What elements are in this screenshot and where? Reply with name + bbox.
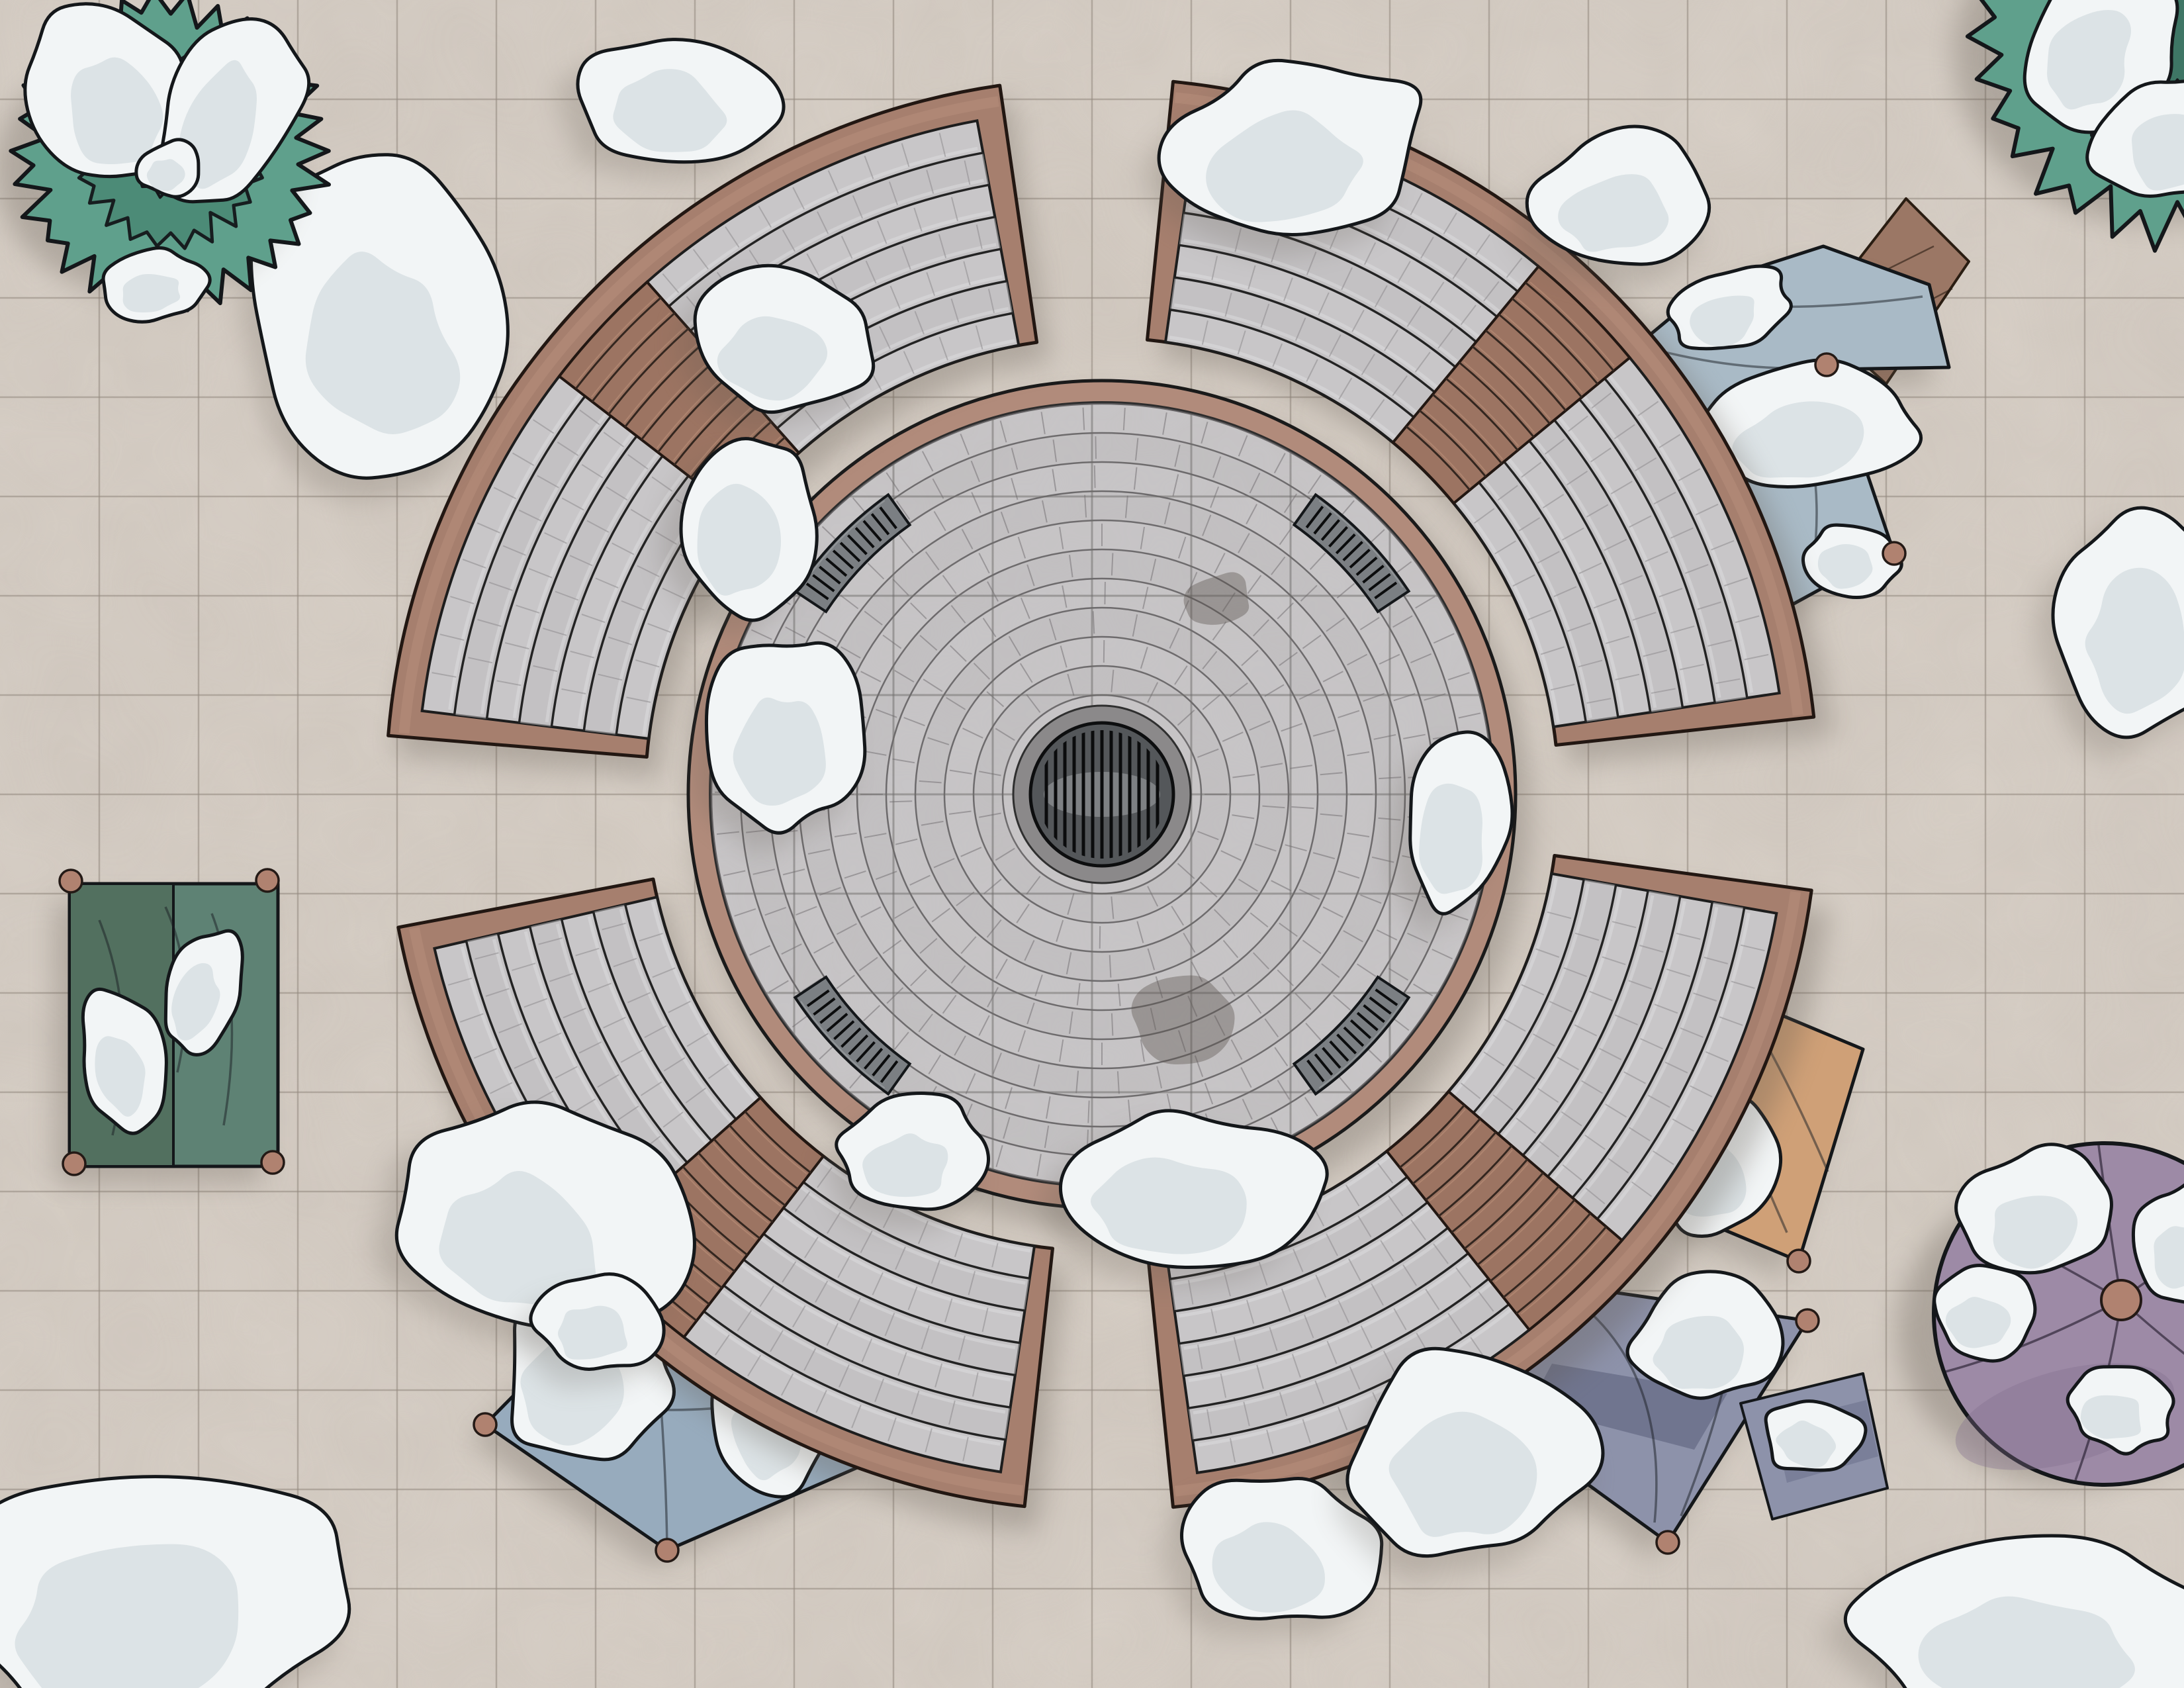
battle-map (0, 0, 2184, 1688)
dome-center-pole (2101, 1280, 2141, 1320)
central-drain (1013, 706, 1191, 883)
tent-peg (1815, 353, 1838, 376)
tent-peg (1796, 1309, 1819, 1332)
tent-peg (1788, 1250, 1810, 1272)
tent-peg (261, 1151, 284, 1174)
tent-peg (1657, 1531, 1679, 1554)
tent-peg (1883, 542, 1905, 565)
tent-peg (474, 1413, 496, 1436)
tent-peg (656, 1539, 678, 1562)
tent-peg (60, 870, 82, 892)
tent-peg (256, 869, 279, 892)
arena-map-canvas (0, 0, 2184, 1688)
green-tarp (55, 869, 284, 1184)
tent-peg (63, 1152, 85, 1175)
